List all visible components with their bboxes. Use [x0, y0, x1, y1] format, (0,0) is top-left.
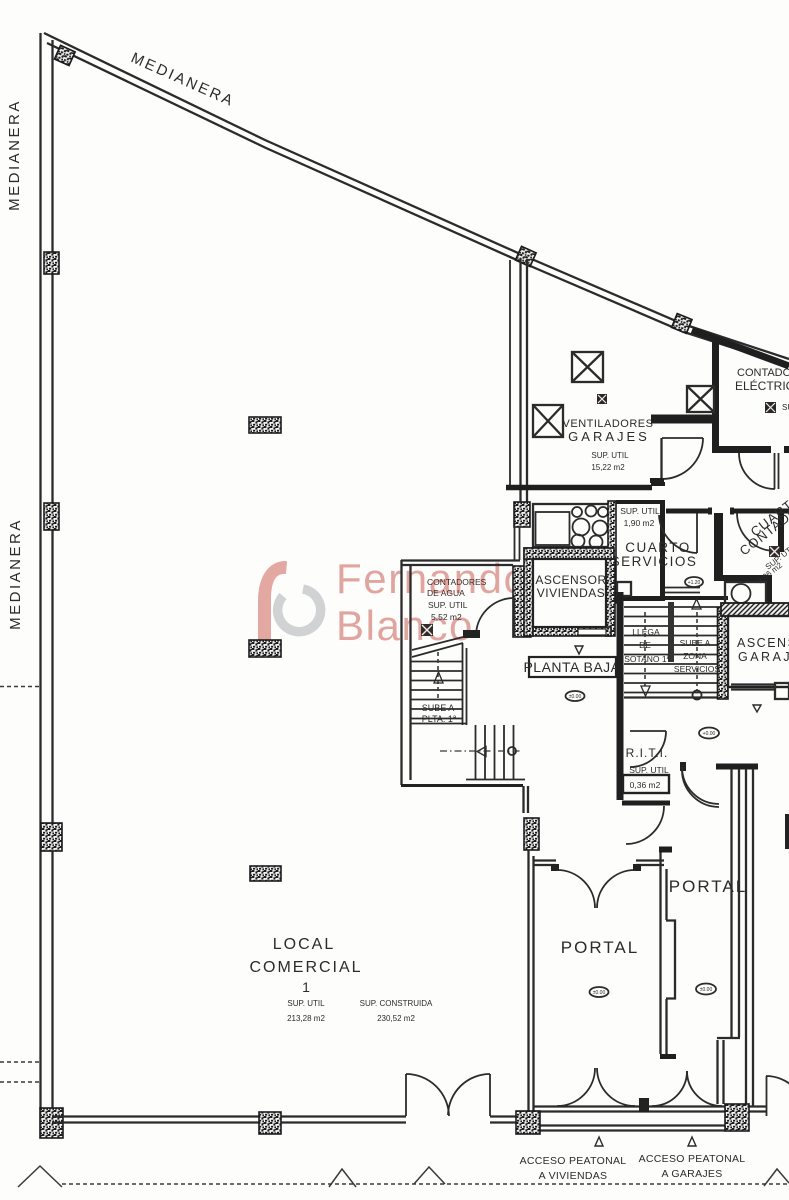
svg-text:SUBE A: SUBE A [680, 638, 711, 648]
svg-text:SUP. UTIL: SUP. UTIL [620, 506, 660, 516]
svg-text:ASCENSOR: ASCENSOR [535, 573, 606, 587]
svg-text:ACCESO PEATONAL: ACCESO PEATONAL [520, 1155, 627, 1167]
svg-text:±0.00: ±0.00 [700, 987, 713, 993]
svg-text:PORTAL: PORTAL [669, 877, 747, 896]
svg-text:VIVIENDAS: VIVIENDAS [537, 586, 606, 600]
svg-text:1,90 m2: 1,90 m2 [624, 518, 655, 528]
svg-text:213,28 m2: 213,28 m2 [287, 1014, 325, 1023]
svg-text:SOTANO 1ª: SOTANO 1ª [624, 654, 670, 664]
svg-text:ASCENSOR: ASCENSOR [737, 636, 789, 650]
svg-text:ACCESO PEATONAL: ACCESO PEATONAL [639, 1153, 746, 1165]
svg-text:GARAJES: GARAJES [568, 429, 650, 444]
svg-text:ZONA: ZONA [683, 651, 707, 661]
svg-text:15,22 m2: 15,22 m2 [591, 463, 625, 472]
svg-text:ELÉCTRICOS: ELÉCTRICOS [735, 378, 789, 393]
svg-text:SUP. CONSTRUIDA: SUP. CONSTRUIDA [360, 999, 433, 1008]
svg-text:PLTA. 1ª: PLTA. 1ª [422, 714, 457, 724]
svg-text:GARAJES: GARAJES [738, 650, 789, 664]
svg-text:A VIVIENDAS: A VIVIENDAS [539, 1170, 608, 1182]
svg-text:±0.00: ±0.00 [569, 694, 582, 700]
svg-text:+1.20: +1.20 [688, 580, 701, 586]
svg-text:CUARTO: CUARTO [625, 540, 691, 555]
svg-text:A GARAJES: A GARAJES [661, 1168, 722, 1180]
svg-text:5,52 m2: 5,52 m2 [431, 612, 462, 622]
svg-text:DE AGUA: DE AGUA [427, 588, 465, 598]
svg-text:SUP. UTIL: SUP. UTIL [629, 765, 669, 775]
svg-text:MEDIANERA: MEDIANERA [7, 518, 24, 630]
svg-text:MEDIANERA: MEDIANERA [6, 99, 23, 211]
svg-text:DE: DE [639, 640, 651, 650]
svg-text:0,36 m2: 0,36 m2 [630, 780, 661, 790]
svg-text:SERVICIOS: SERVICIOS [611, 554, 698, 569]
svg-text:PLANTA BAJA: PLANTA BAJA [523, 659, 620, 675]
svg-text:+0.00: +0.00 [703, 731, 716, 737]
svg-text:SUP. UTIL: SUP. UTIL [591, 451, 629, 460]
svg-text:PORTAL: PORTAL [561, 938, 639, 957]
svg-text:LOCAL: LOCAL [273, 936, 335, 953]
svg-text:±0.00: ±0.00 [593, 990, 606, 996]
svg-text:1: 1 [302, 979, 310, 995]
svg-text:LLEGA: LLEGA [632, 627, 660, 637]
svg-text:SUP. UTIL: SUP. UTIL [287, 999, 325, 1008]
svg-text:CONTADORES: CONTADORES [427, 577, 487, 587]
svg-text:SU: SU [782, 403, 789, 412]
svg-text:SUP. UTIL: SUP. UTIL [428, 600, 468, 610]
svg-text:SUBE A: SUBE A [422, 703, 455, 713]
svg-text:230,52 m2: 230,52 m2 [377, 1014, 415, 1023]
svg-text:R.I.T.I.: R.I.T.I. [626, 746, 669, 760]
svg-text:CONTADOR: CONTADOR [737, 367, 789, 379]
svg-text:SERVICIOS: SERVICIOS [674, 664, 720, 674]
svg-text:COMERCIAL: COMERCIAL [249, 959, 362, 976]
